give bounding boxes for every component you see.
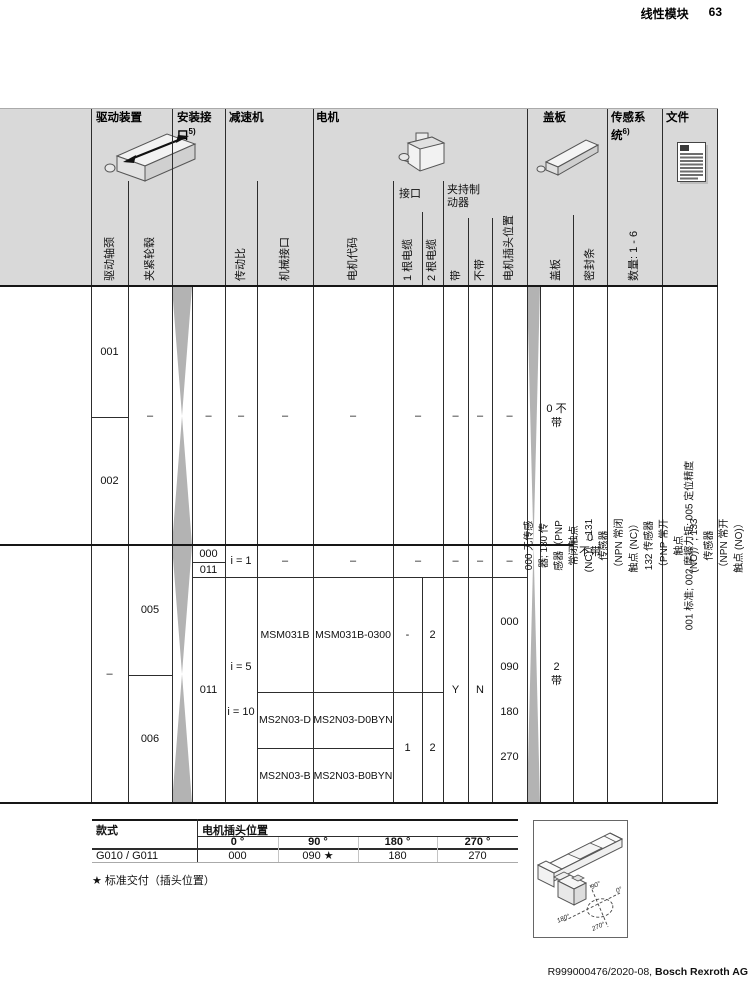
cell-i1-iface-dash: – [393,545,443,577]
deg-header-0: 0 ° [197,836,278,848]
cell-mech-msm031b: MSM031B [257,577,313,692]
col-label-drive-journal: 驱动轴颈 [104,237,117,281]
row-value-180: 180 [358,849,437,862]
drive-unit-icon [103,127,205,183]
footer-company: Bosch Rexroth AG [655,966,748,978]
deg-header-90: 90 ° [278,836,358,848]
col-label-clamp-hub: 夹紧轮毂 [144,237,157,281]
cell-i1-code-dash: – [313,545,393,577]
cell-iface-dash: – [393,287,443,545]
standard-delivery-note: ★ 标准交付（插头位置） [92,872,215,888]
cell-brake-without-n: N [468,577,492,803]
page-number: 63 [709,5,722,22]
cell-hub-005: 005 [128,545,172,675]
grid-line [92,819,518,821]
grid-line [422,212,423,287]
cell-cover-2: 2 带 [540,545,573,803]
cell-ratio-i5-i10: i = 5 i = 10 [225,577,257,803]
grid-line [527,108,528,803]
cell-ratio-dash: – [225,287,257,545]
label-holding-brake: 夹持制动器 [447,184,485,209]
group-title-cover: 盖板 [543,112,566,125]
col-label-seal-strip: 密封条 [584,248,597,281]
cell-msm-cable2: 2 [422,577,443,692]
grid-line [0,108,718,109]
cell-i1-mech-dash: – [257,545,313,577]
row-value-270: 270 [437,849,518,862]
cell-journal-001: 001 [91,287,128,417]
label-interface: 接口 [399,188,421,201]
cell-sensor-options: 000 无传感器; 130 传感器（PNP 常闭触点 (NC)）; 131 传感… [607,287,662,803]
cell-ms2n-cable2: 2 [422,692,443,803]
deg-header-270: 270 ° [437,836,518,848]
deg-header-180: 180 ° [358,836,437,848]
deg90-label: 90° [590,879,603,890]
cell-plug-dash: – [492,287,527,545]
style-column-header: 款式 [96,822,118,838]
deg180-label: 180° [556,912,572,925]
cell-mount-000: 000 [192,545,225,562]
row-label-g010-g011: G010 / G011 [96,850,158,862]
page-title: 线性模块 [641,5,689,22]
grid-line [172,108,173,803]
group-title-sensor: 传感系统6) [611,112,655,143]
col-label-motor-code: 电机代码 [347,237,360,281]
col-label-with: 带 [450,270,463,281]
group-title-drive: 驱动装置 [96,112,142,125]
cell-ms2n-cable1: 1 [393,692,422,803]
col-label-ratio: 传动比 [235,248,248,281]
document-icon [676,142,710,186]
col-label-cable2: 2 根电缆 [426,239,439,281]
cell-hub-dash: – [128,287,172,545]
deg0-label: 0° [615,885,624,895]
cell-cover-0: 0 不 带 [540,287,573,545]
col-label-cover: 盖板 [550,259,563,281]
row-value-000: 000 [197,849,278,862]
col-label-plug-position: 电机插头位置 [503,215,516,281]
plug-orientation-illustration: 90° 0° 180° 270° [533,820,628,938]
cell-mount-011a: 011 [192,562,225,577]
col-label-mech-interface: 机械接口 [279,237,292,281]
motor-icon [396,129,448,179]
cell-i1-with-dash: – [443,545,468,577]
cell-msm-cable1: - [393,577,422,692]
group-title-file: 文件 [666,112,689,125]
group-title-motor: 电机 [316,112,339,125]
cell-mech-ms2n03d: MS2N03-D [257,692,313,748]
grid-line [717,108,718,803]
cell-code-dash: – [313,287,393,545]
cover-icon [536,131,604,183]
cell-brake-with-y: Y [443,577,468,803]
selector-connector-top [172,287,192,545]
col-label-cable1: 1 根电缆 [402,239,415,281]
cell-code-ms2n03b: MS2N03-B0BYN [313,748,393,803]
group-title-gear: 减速机 [229,112,264,125]
cell-plug-positions: 000 090 180 270 [492,577,527,803]
footnote-6: 6) [623,127,630,136]
deg270-label: 270° [590,920,607,933]
cell-mount-011b: 011 [192,577,225,803]
cell-without-dash: – [468,287,492,545]
cell-file-options: 001 标准; 002 摩擦力矩; 005 定位精度 [662,287,717,803]
linear-module-drawing: 90° 0° 180° 270° [534,821,627,937]
cell-mech-dash: – [257,287,313,545]
cell-mount-dash: – [192,287,225,545]
row-value-090: 090 ★ [278,849,358,862]
cell-code-ms2n03d: MS2N03-D0BYN [313,692,393,748]
col-label-without: 不带 [474,259,487,281]
selector-connector-bottom [172,545,192,803]
cell-with-dash: – [443,287,468,545]
footer-reference: R999000476/2020-08, [548,966,655,978]
col-label-quantity: 数量: 1 - 6 [628,231,641,281]
cell-code-msm031b: MSM031B-0300 [313,577,393,692]
cell-i1-without-dash: – [468,545,492,577]
page-footer: R999000476/2020-08, Bosch Rexroth AG [400,966,748,978]
catalog-page: { "page": { "title": "线性模块", "number": "… [0,0,750,988]
cell-ratio-i1: i = 1 [225,545,257,577]
cell-mech-ms2n03b: MS2N03-B [257,748,313,803]
cell-journal-dash: – [91,545,128,803]
cell-hub-006: 006 [128,675,172,803]
page-header: 线性模块63 [560,5,722,22]
cell-journal-002: 002 [91,417,128,545]
